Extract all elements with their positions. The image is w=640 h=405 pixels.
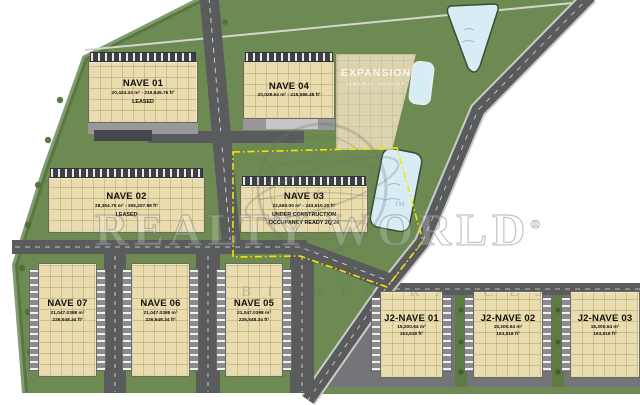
building-j2-nave-03: J2-NAVE 03 15,200.64 m² 163,618 ft²	[570, 291, 640, 378]
building-area-ft2: 163,618 ft²	[593, 332, 616, 338]
building-status: UNDER CONSTRUCTION	[272, 212, 336, 219]
building-status-detail: OCCUPANCY READY 2Q'26	[269, 220, 339, 227]
building-area-m2: 21,047.0398 m²	[144, 311, 178, 317]
building-status: LEASED	[116, 212, 138, 219]
building-area-ft2: 226,548.34 ft²	[52, 318, 82, 324]
building-name: NAVE 06	[140, 298, 180, 310]
building-area-m2: 21,047.0398 m²	[237, 311, 271, 317]
building-area-m2: 15,200.64 m²	[591, 325, 620, 331]
j2-bottom-green-strip	[318, 387, 640, 394]
building-area: 13,952.46 m² - 150,182.36 ft²	[346, 81, 406, 87]
building-j2-nave-01: J2-NAVE 01 15,200.64 m² 163,618 ft²	[380, 291, 443, 378]
building-name: NAVE 05	[234, 298, 274, 310]
building-area-ft2: 163,618 ft²	[496, 332, 519, 338]
building-area-ft2: 226,548.34 ft²	[145, 318, 175, 324]
building-name: NAVE 02	[106, 191, 146, 203]
building-area: 22,660.00 m² - 243,910.20 ft²	[273, 204, 336, 210]
building-area-ft2: 163,618 ft²	[400, 332, 423, 338]
building-nave-03: NAVE 03 22,660.00 m² - 243,910.20 ft² UN…	[240, 185, 368, 233]
building-name: J2-NAVE 01	[384, 313, 439, 325]
building-nave-07: NAVE 07 21,047.0398 m² 226,548.34 ft²	[38, 263, 97, 377]
building-name: NAVE 04	[269, 81, 309, 93]
building-nave-05: NAVE 05 21,047.0398 m² 226,548.34 ft²	[225, 263, 283, 377]
building-name: EXPANSION	[341, 67, 411, 80]
building-name: NAVE 03	[284, 191, 324, 203]
building-area-m2: 15,200.64 m²	[494, 325, 523, 331]
building-name: J2-NAVE 03	[578, 313, 633, 325]
building-area-ft2: 226,548.34 ft²	[239, 318, 269, 324]
building-area: 20,028.64 m² - 215,586.48 ft²	[258, 93, 321, 99]
building-name: NAVE 01	[123, 78, 163, 90]
building-nave-02: NAVE 02 28,354.75 m² - 305,207.98 ft² LE…	[48, 177, 205, 233]
building-name: J2-NAVE 02	[481, 313, 536, 325]
building-area: 28,354.75 m² - 305,207.98 ft²	[95, 204, 158, 210]
nave01-trailer-parking	[94, 130, 152, 141]
building-area-m2: 21,047.0398 m²	[51, 311, 85, 317]
building-status: LEASED	[132, 99, 154, 106]
building-area-m2: 15,200.64 m²	[397, 325, 426, 331]
building-nave-04: NAVE 04 20,028.64 m² - 215,586.48 ft²	[243, 61, 335, 119]
site-plan: NAVE 01 20,424.34 m² - 219,845.76 ft² LE…	[0, 0, 640, 405]
nave04-trailer-parking	[266, 119, 318, 129]
building-area: 20,424.34 m² - 219,845.76 ft²	[112, 91, 175, 97]
building-name: NAVE 07	[47, 298, 87, 310]
building-nave-06: NAVE 06 21,047.0398 m² 226,548.34 ft²	[131, 263, 190, 377]
building-nave-01: NAVE 01 20,424.34 m² - 219,845.76 ft² LE…	[88, 61, 198, 123]
building-j2-nave-02: J2-NAVE 02 15,200.64 m² 163,618 ft²	[473, 291, 543, 378]
